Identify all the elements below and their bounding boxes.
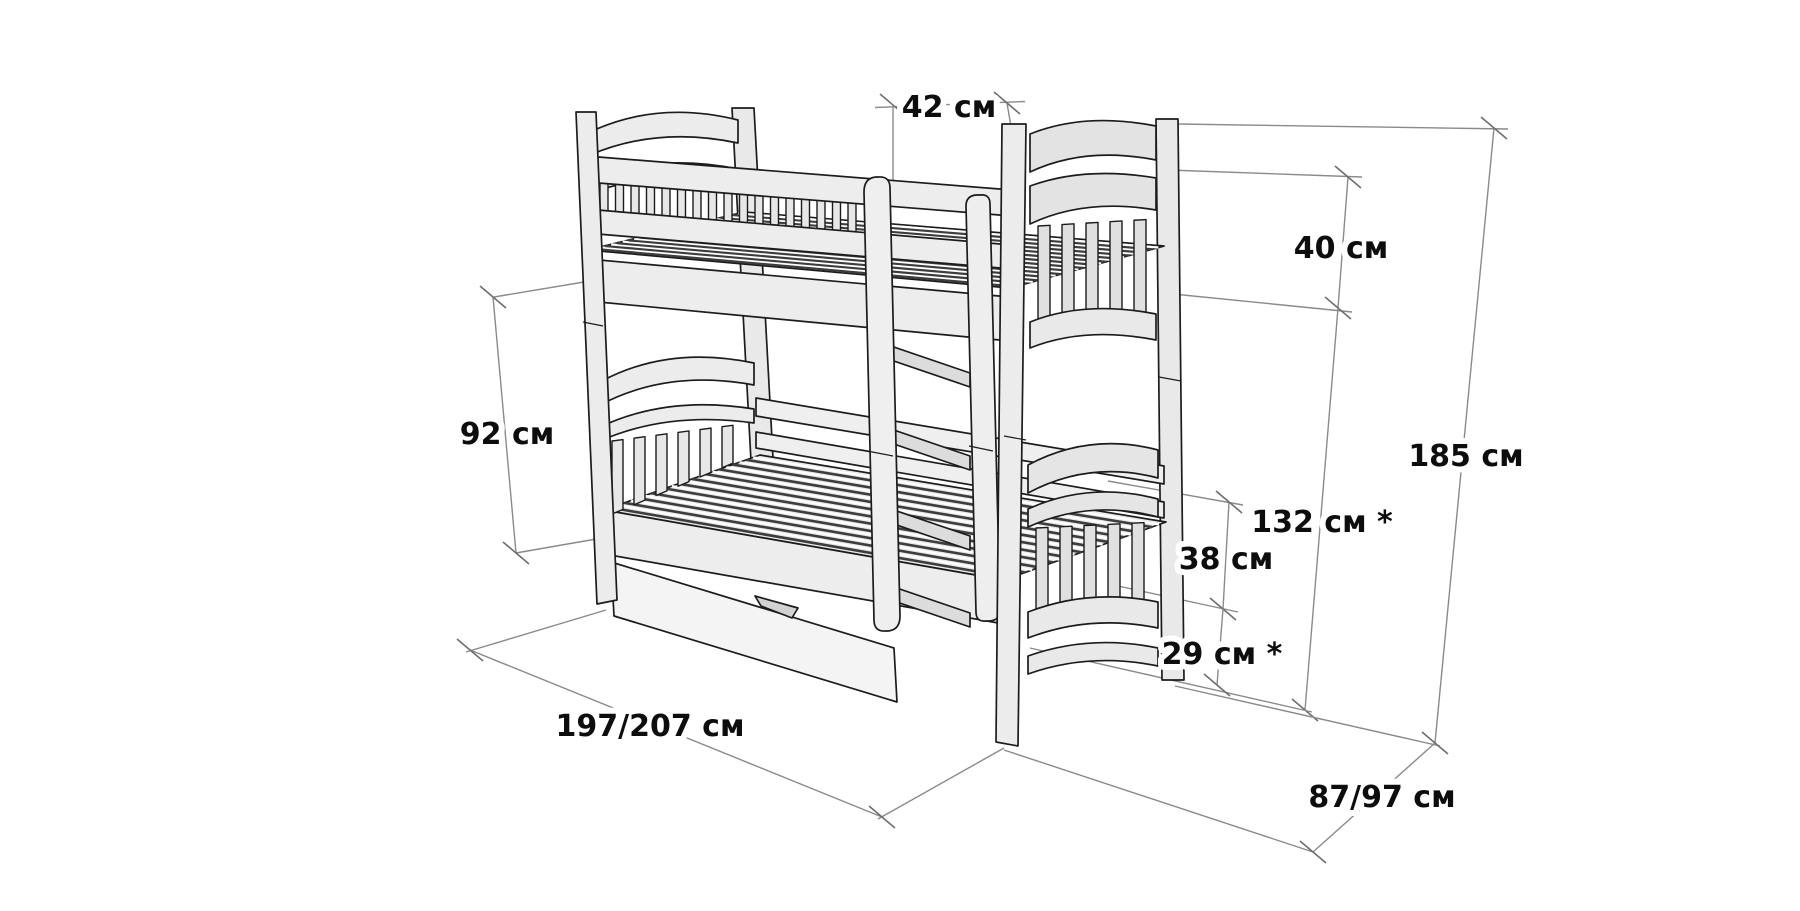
label-headboard-top: 40 см (1294, 231, 1389, 266)
label-lower-section-height: 92 см (460, 417, 555, 452)
label-under-bed-clearance: 29 см * (1162, 637, 1283, 672)
bunk-bed-drawing (576, 108, 1184, 746)
label-lower-rail-section: 38 см (1179, 542, 1274, 577)
label-bed-width: 87/97 см (1308, 780, 1455, 815)
label-ladder-width: 42 см (902, 90, 997, 125)
label-total-height: 185 см (1408, 439, 1523, 474)
diagram-canvas: 42 см 40 см 185 см 132 см * 38 см 29 см … (0, 0, 1800, 911)
upper-footboard (1030, 121, 1156, 348)
label-bed-length: 197/207 см (556, 709, 745, 744)
bunk-bed-dimension-diagram: 42 см 40 см 185 см 132 см * 38 см 29 см … (0, 0, 1800, 911)
front-right-post (996, 124, 1026, 746)
dimension-bed-width (1004, 686, 1448, 863)
label-upper-rail-height: 132 см * (1251, 505, 1393, 540)
